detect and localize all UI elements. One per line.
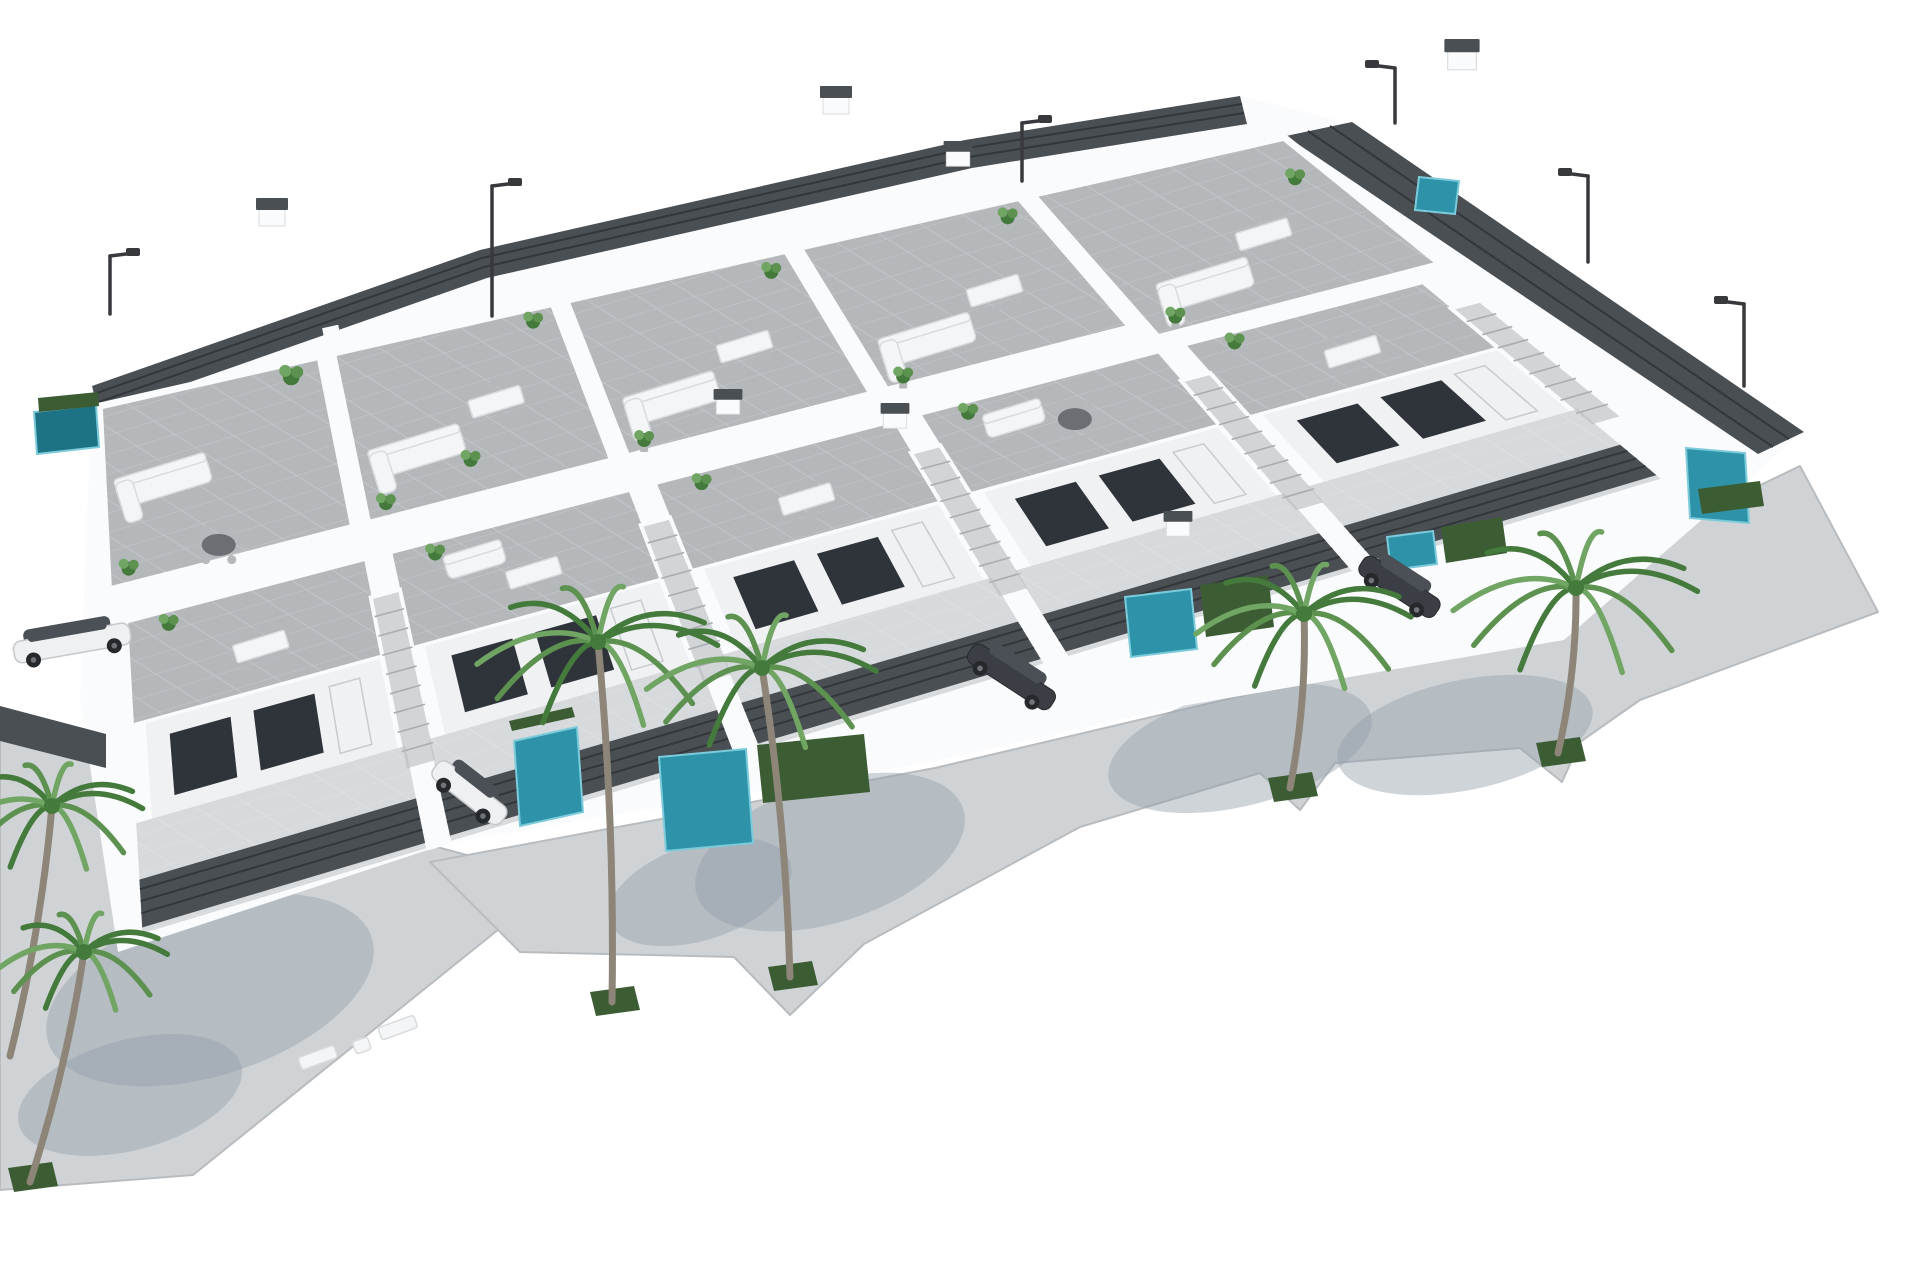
street-lamp xyxy=(110,248,140,314)
pool xyxy=(659,749,753,851)
street-lamp xyxy=(1714,296,1744,386)
chimney xyxy=(1444,39,1479,70)
pool xyxy=(514,727,583,826)
chimney xyxy=(1164,511,1193,536)
chimney xyxy=(256,198,288,226)
render-canvas xyxy=(0,0,1920,1280)
street-lamp xyxy=(1558,168,1588,262)
architectural-render xyxy=(0,0,1920,1280)
lap-pool-left xyxy=(34,405,99,454)
chimney xyxy=(820,86,852,114)
pool xyxy=(1415,177,1459,214)
chimney xyxy=(881,403,910,428)
pool xyxy=(1125,589,1197,657)
street-lamp xyxy=(1365,60,1395,123)
chimney xyxy=(714,389,743,414)
chimney xyxy=(944,141,973,166)
